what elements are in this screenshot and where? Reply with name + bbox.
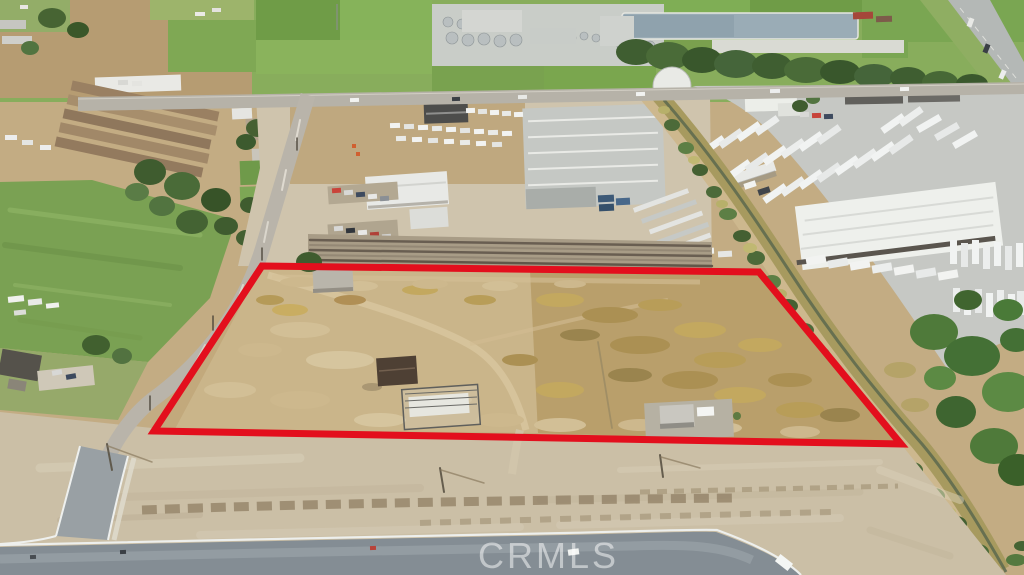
euco-trees-item xyxy=(820,60,860,84)
parcel-mottle-item xyxy=(482,281,518,291)
tanks-item xyxy=(478,33,490,45)
tanks-item xyxy=(592,34,600,42)
cars-item xyxy=(466,108,475,113)
cars-item xyxy=(446,127,456,132)
cars-item xyxy=(334,226,343,232)
parcel-mottle-item xyxy=(354,413,406,427)
parcel-mottle-item xyxy=(204,382,256,398)
storage-lot-item xyxy=(526,187,597,209)
euco-trees-item xyxy=(714,50,758,78)
parcel-mottle-item xyxy=(464,295,496,305)
left-trees-item xyxy=(176,210,208,234)
hw-vehicles-item xyxy=(900,87,909,91)
pad-bush xyxy=(733,412,741,420)
hw-vehicles-item xyxy=(636,92,645,96)
yard-misc-item xyxy=(812,113,821,118)
yard-trailers-item xyxy=(986,293,993,317)
parcel-mottle-item xyxy=(768,373,812,387)
road-vehicles-item xyxy=(30,555,36,559)
hw-vehicles-item xyxy=(452,97,460,101)
farm-fields-item xyxy=(168,20,256,72)
yard-trailers-item xyxy=(1016,243,1023,267)
left-trees-item xyxy=(125,183,149,201)
parcel-mottle-item xyxy=(534,418,586,432)
yard-trailers-item xyxy=(950,240,957,264)
canal-bushes-item xyxy=(719,208,737,220)
cars-item xyxy=(514,112,523,117)
top-structures-item xyxy=(462,10,522,32)
left-trees-item xyxy=(112,348,132,364)
parcel-mottle-item xyxy=(334,295,366,305)
cars-item xyxy=(332,188,341,194)
top-structures-item xyxy=(876,16,892,23)
canal-bushes-item xyxy=(664,119,680,131)
hw-vehicles-item xyxy=(518,95,527,99)
parcel-mottle-item xyxy=(776,402,824,418)
cars-item xyxy=(358,230,367,236)
canal-bushes-item xyxy=(692,164,708,176)
cars-item xyxy=(460,128,470,133)
canal-bushes-item xyxy=(658,106,670,114)
cars-item xyxy=(418,125,428,130)
listing-photo: CRMLS xyxy=(0,0,1024,575)
parcel-mottle-item xyxy=(638,299,682,311)
right-trees-item xyxy=(954,290,982,310)
top-structures-item xyxy=(20,5,28,9)
top-structures-item xyxy=(195,12,205,16)
tanks-item xyxy=(494,35,506,47)
left-trees-item xyxy=(134,159,166,185)
hw-vehicles-item xyxy=(350,98,359,102)
farm-fields-item xyxy=(340,0,432,40)
parcel-mottle-item xyxy=(306,351,374,369)
storage-lot-item xyxy=(598,195,614,203)
parcel-mottle-item xyxy=(476,413,524,427)
yard-misc-item xyxy=(824,114,833,119)
left-trees-item xyxy=(201,188,231,212)
canal-bushes-item xyxy=(688,156,700,164)
canal-bushes-item xyxy=(747,251,765,265)
storage-lot-item xyxy=(616,198,630,206)
parcel-mottle-item xyxy=(412,279,448,289)
cars-item xyxy=(432,126,442,131)
cars-item xyxy=(352,144,356,148)
parcel-mottle-item xyxy=(820,408,860,422)
top-structures-item xyxy=(118,80,128,85)
road-vehicles-item xyxy=(120,550,126,554)
cars-item xyxy=(444,139,454,144)
left-trees-item xyxy=(149,196,175,216)
yard-trailers-item xyxy=(983,245,990,269)
parcel-mottle-item xyxy=(502,354,538,366)
yard-trailers-item xyxy=(961,243,968,267)
top-structures-item xyxy=(132,81,142,86)
left-trees-item xyxy=(82,335,110,355)
left-trees-item xyxy=(21,41,39,55)
cars-item xyxy=(474,129,484,134)
canal-bushes-item xyxy=(706,186,722,198)
canal-bushes-item xyxy=(678,142,694,154)
treatment-pond-dark xyxy=(624,15,734,37)
farm-fields-item xyxy=(150,0,254,20)
parcel-mottle-item xyxy=(238,343,282,357)
top-structures-item xyxy=(0,20,26,29)
parcel-mottle-item xyxy=(536,382,584,398)
cars-item xyxy=(390,123,400,128)
cars-item xyxy=(346,228,355,234)
cars-item xyxy=(368,194,377,200)
cars-item xyxy=(356,152,360,156)
parcel-mottle-item xyxy=(662,371,718,389)
yard-trailers-item xyxy=(1005,246,1012,270)
parcel-mottle-item xyxy=(582,307,638,323)
cars-item xyxy=(490,110,499,115)
canal-bushes-item xyxy=(733,230,751,242)
rvs-item xyxy=(40,145,51,150)
cars-item xyxy=(428,138,438,143)
parcel-mottle-item xyxy=(554,280,586,288)
cars-item xyxy=(380,196,389,202)
parcel-mottle-item xyxy=(560,329,600,341)
right-trees-item xyxy=(936,396,976,428)
tanks-item xyxy=(580,32,588,40)
cars-item xyxy=(478,109,487,114)
canal-bushes-item xyxy=(716,200,728,208)
cars-item xyxy=(404,124,414,129)
white-van xyxy=(697,407,714,417)
cars-item xyxy=(492,142,502,147)
yard-trailers-item xyxy=(972,240,979,264)
left-trees-item xyxy=(214,217,238,235)
cars-item xyxy=(502,131,512,136)
parcel-mottle-item xyxy=(270,322,330,338)
top-structures-item xyxy=(212,8,221,12)
cars-item xyxy=(412,137,422,142)
cars-item xyxy=(396,136,406,141)
cars-item xyxy=(488,130,498,135)
parcel-mottle-item xyxy=(738,338,782,352)
parcel-mottle-item xyxy=(272,304,308,316)
parcel-mottle-item xyxy=(608,368,652,382)
left-trees-item xyxy=(236,134,256,150)
right-trees-item xyxy=(924,366,956,390)
storage-lot-item xyxy=(599,204,614,212)
houses-item xyxy=(232,107,253,119)
cars-item xyxy=(718,251,732,258)
top-structures-item xyxy=(530,28,576,44)
cars-item xyxy=(460,140,470,145)
right-trees-item xyxy=(944,336,1000,376)
cars-item xyxy=(476,141,486,146)
storage-lot-item xyxy=(290,96,525,184)
yard-misc-item xyxy=(800,112,809,117)
left-trees-item xyxy=(67,22,89,38)
canal-bushes-item xyxy=(743,243,757,253)
parcel-mottle-item xyxy=(674,322,726,338)
canal-bushes-item xyxy=(901,398,929,412)
left-trees-item xyxy=(164,172,200,200)
parcel-mottle-item xyxy=(256,295,284,305)
parcel-mottle-item xyxy=(780,426,820,438)
parcel-mottle-item xyxy=(610,336,670,354)
parcel-mottle-item xyxy=(270,391,330,409)
rvs-item xyxy=(5,135,17,140)
tanks-item xyxy=(446,32,458,44)
top-structures-item xyxy=(853,12,873,20)
parcel-mottle-item xyxy=(536,293,584,307)
left-trees-item xyxy=(38,8,66,28)
parcel-mottle-item xyxy=(694,352,746,368)
tanks-item xyxy=(462,34,474,46)
crmls-watermark: CRMLS xyxy=(478,535,619,575)
canal-bushes-item xyxy=(792,100,808,112)
yard-trailers-item xyxy=(994,242,1001,266)
aerial-photo-canvas: CRMLS xyxy=(0,0,1024,575)
rvs-item xyxy=(22,140,33,145)
hw-vehicles-item xyxy=(770,89,780,93)
tanks-item xyxy=(510,34,522,46)
storage-lot-item xyxy=(409,207,448,230)
farm-fields-item xyxy=(256,40,432,74)
road-vehicles-item xyxy=(370,546,376,550)
tanks-item xyxy=(443,17,453,27)
cars-item xyxy=(356,192,365,198)
right-trees-item xyxy=(993,299,1023,321)
cars-item xyxy=(344,190,353,196)
canal-bushes-item xyxy=(884,362,916,378)
cars-item xyxy=(502,111,511,116)
